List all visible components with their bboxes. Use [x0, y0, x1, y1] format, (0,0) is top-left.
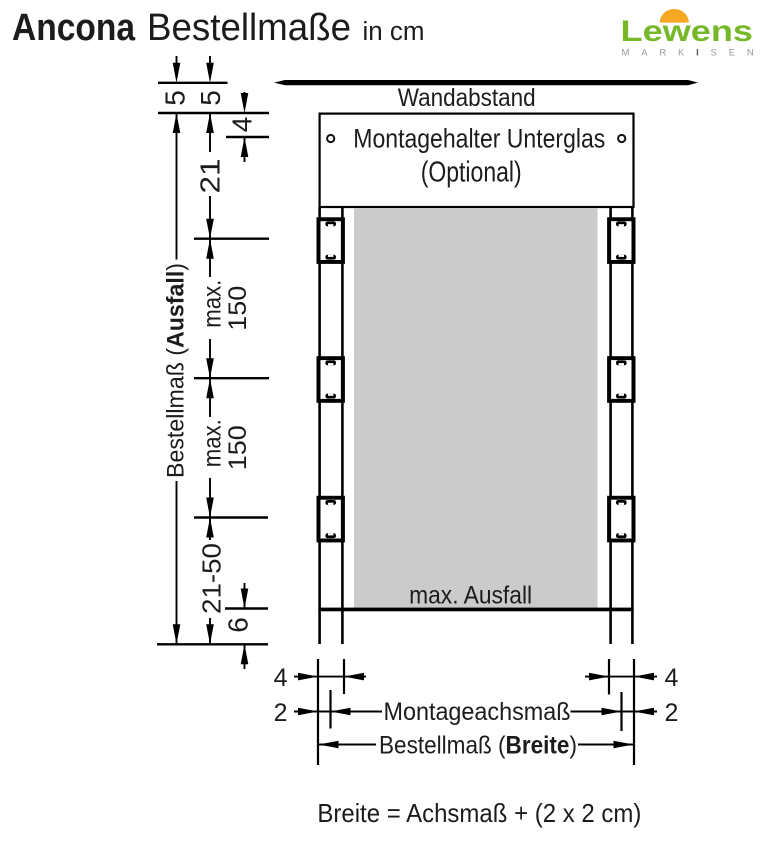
svg-text:4: 4	[274, 664, 288, 692]
svg-text:max.: max.	[199, 280, 227, 328]
svg-text:Bestellmaß (Ausfall): Bestellmaß (Ausfall)	[163, 263, 190, 478]
svg-text:max. Ausfall: max. Ausfall	[409, 582, 532, 610]
svg-text:150: 150	[224, 425, 252, 470]
svg-text:MARKISEN: MARKISEN	[622, 48, 766, 59]
svg-text:4: 4	[665, 664, 679, 692]
svg-text:21: 21	[195, 159, 226, 194]
svg-text:Lewens: Lewens	[621, 15, 754, 48]
svg-text:Bestellmaße: Bestellmaße	[147, 7, 351, 49]
svg-text:5: 5	[195, 90, 226, 106]
svg-text:Breite = Achsmaß + (2 x 2 cm): Breite = Achsmaß + (2 x 2 cm)	[317, 798, 641, 828]
svg-text:21-50: 21-50	[197, 543, 227, 614]
svg-text:2: 2	[665, 699, 679, 727]
svg-text:Ancona: Ancona	[12, 7, 136, 49]
svg-text:150: 150	[224, 286, 252, 331]
svg-text:4: 4	[227, 117, 258, 133]
svg-text:in cm: in cm	[363, 18, 425, 46]
svg-text:Bestellmaß (Breite): Bestellmaß (Breite)	[379, 732, 577, 760]
svg-text:Wandabstand: Wandabstand	[398, 84, 536, 112]
svg-text:6: 6	[223, 617, 254, 633]
svg-text:Montageachsmaß: Montageachsmaß	[384, 698, 571, 726]
svg-text:5: 5	[160, 90, 191, 106]
svg-text:Montagehalter Unterglas: Montagehalter Unterglas	[353, 124, 605, 154]
svg-text:(Optional): (Optional)	[421, 157, 522, 189]
svg-text:max.: max.	[199, 419, 227, 467]
svg-text:2: 2	[274, 699, 288, 727]
